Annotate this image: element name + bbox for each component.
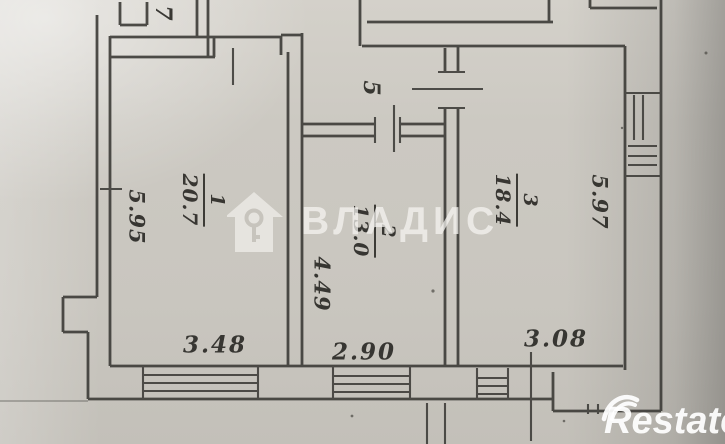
vladis-watermark-text: ВЛАДИС (301, 200, 499, 244)
restate-watermark: Restate (597, 391, 725, 444)
vladis-watermark: ВЛАДИС (227, 191, 499, 253)
house-key-icon (227, 191, 285, 253)
room-1-label: 1 20.7 (180, 174, 226, 227)
room-1-number: 1 (205, 193, 226, 206)
scanned-floorplan: 1 20.7 2 13.0 3 18.4 5 7 5.95 4.49 5.97 … (0, 0, 725, 444)
dim-room3-width: 3.08 (524, 328, 588, 351)
room-3-label: 3 18.4 (493, 174, 539, 227)
dim-room1-width: 3.48 (183, 334, 247, 357)
room-3-number: 3 (518, 193, 539, 206)
dim-room3-depth: 5.97 (590, 174, 611, 229)
dim-room1-depth: 5.95 (127, 189, 148, 244)
room-5-label: 5 (360, 80, 382, 95)
dim-room2-depth: 4.49 (312, 256, 333, 311)
room-1-area: 20.7 (180, 174, 205, 227)
room-7-label: 7 (152, 5, 174, 20)
dim-room2-width: 2.90 (332, 341, 396, 364)
restate-watermark-text: Restate (604, 400, 725, 443)
